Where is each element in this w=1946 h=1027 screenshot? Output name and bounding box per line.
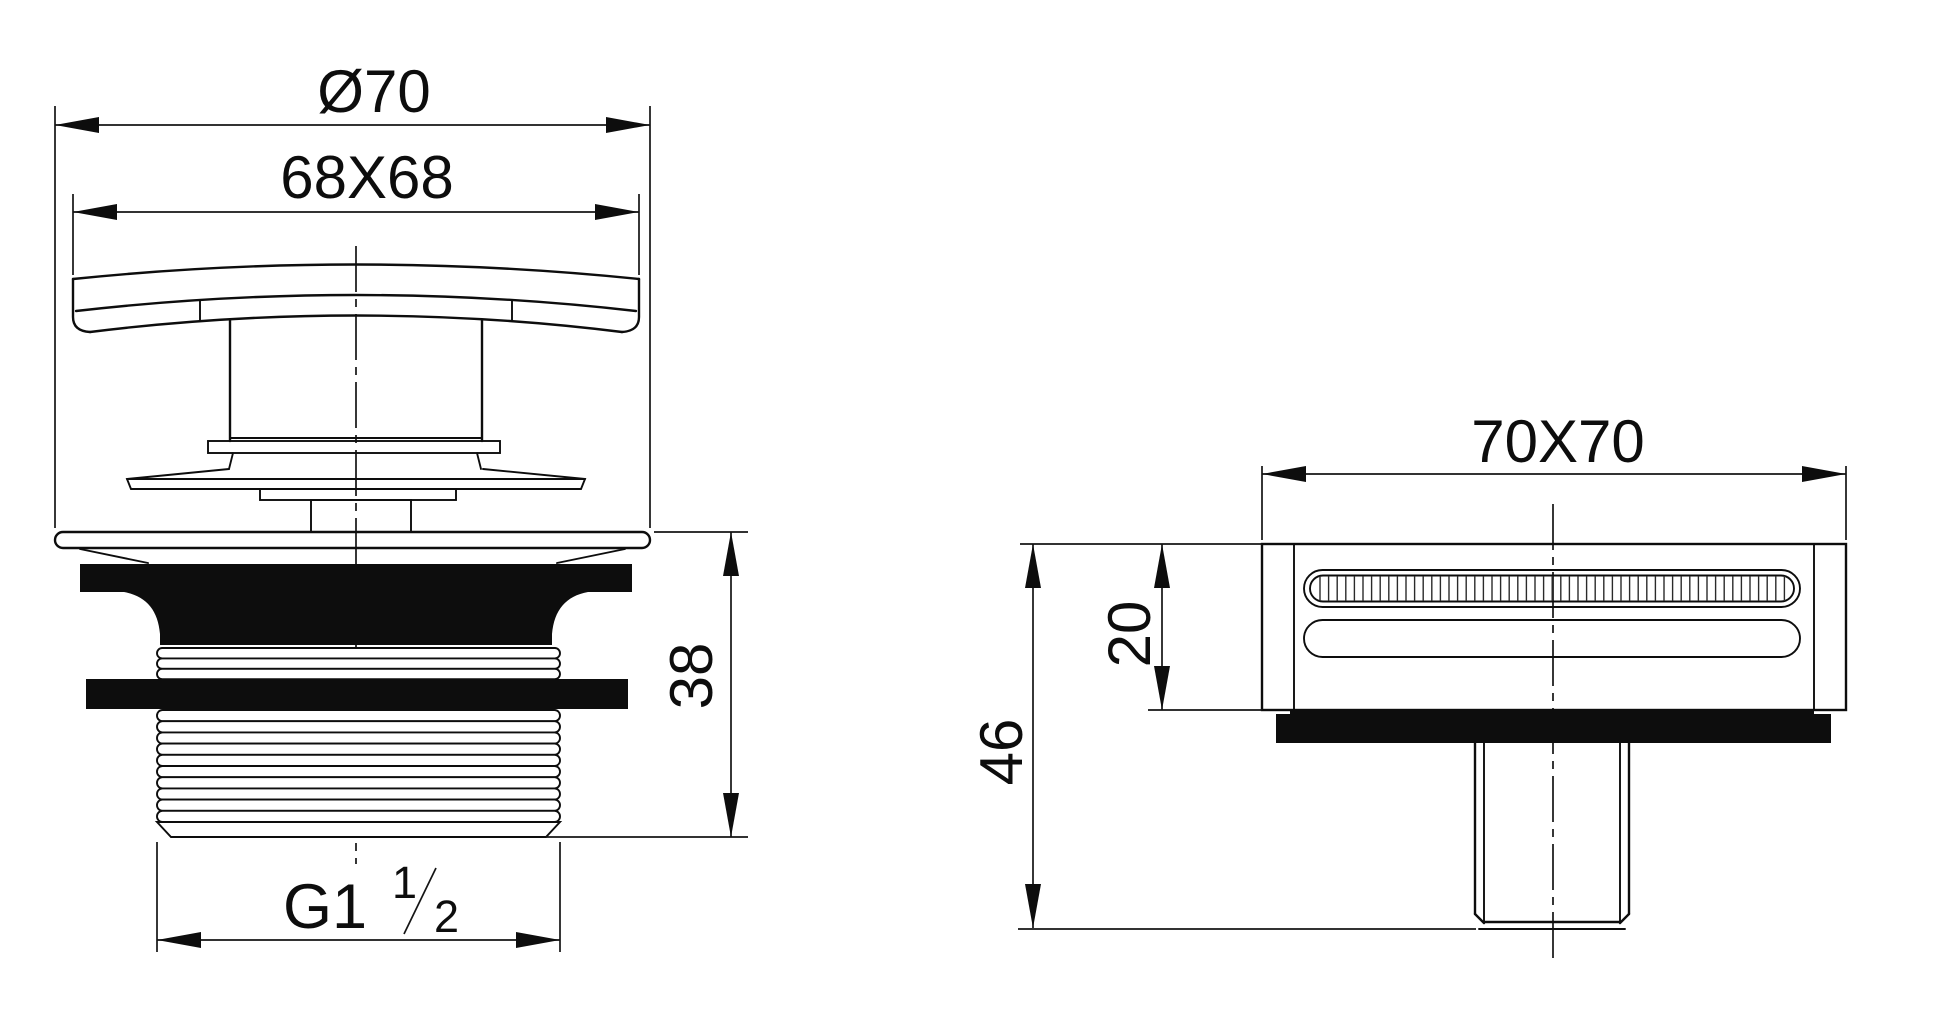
arrow-left-icon	[73, 204, 117, 220]
dim-thread-g1-2: G1 1 2	[157, 842, 560, 952]
arrow-up-icon	[1154, 544, 1170, 588]
arrow-right-icon	[516, 932, 560, 948]
drawing-sheet: Ø70 68X68	[0, 0, 1946, 1027]
seat-block	[260, 489, 456, 500]
side-gasket	[1276, 710, 1831, 743]
dim-label-thread-numerator: 1	[392, 857, 417, 908]
arrow-up-icon	[1025, 544, 1041, 588]
cap-right-end	[622, 279, 639, 332]
dim-label-height: 38	[658, 643, 725, 710]
arrow-down-icon	[1025, 884, 1041, 928]
thread-ring	[157, 744, 560, 755]
dim-diameter-70: Ø70	[55, 58, 650, 528]
body-plate	[55, 532, 650, 548]
thread-ring	[157, 648, 560, 658]
body-outline	[1262, 544, 1846, 710]
thread-ring	[157, 811, 560, 822]
thread-ring	[157, 766, 560, 777]
locknut-washer	[86, 679, 628, 709]
thread-rings-lower	[157, 710, 560, 822]
dim-label-thread-denominator: 2	[434, 891, 459, 942]
thread-ring	[157, 755, 560, 766]
drawing-canvas: Ø70 68X68	[0, 0, 1946, 1027]
cap-left-end	[73, 279, 90, 332]
plate-underside-right	[557, 549, 625, 563]
dim-label-body-height: 20	[1096, 601, 1163, 668]
grate-hatch-lines	[1320, 576, 1784, 601]
side-stem	[1475, 743, 1629, 929]
dim-label-width: 70X70	[1471, 408, 1645, 475]
thread-end-chamfer	[157, 822, 560, 837]
plate-underside-left	[80, 549, 148, 563]
thread-ring	[157, 721, 560, 732]
arrow-down-icon	[723, 793, 739, 837]
front-view: Ø70 68X68	[55, 58, 748, 952]
thread-ring	[157, 669, 560, 679]
thread-ring	[157, 777, 560, 788]
dim-label-diameter: Ø70	[317, 58, 430, 125]
guide-block	[311, 500, 411, 532]
thread-ring	[157, 710, 560, 721]
rubber-gasket	[80, 564, 632, 645]
thread-ring	[157, 658, 560, 668]
grate-slot-plain	[1304, 620, 1800, 657]
dim-label-cap: 68X68	[280, 144, 454, 211]
dim-width-70x70: 70X70	[1262, 408, 1846, 540]
dim-label-thread: G1	[283, 872, 367, 942]
dim-label-total-height: 46	[968, 719, 1035, 786]
thread-rings-upper	[157, 648, 560, 679]
flange-plate	[208, 441, 500, 453]
dim-body-20: 20	[1096, 544, 1262, 710]
side-view: 70X70	[968, 408, 1846, 958]
thread-ring	[157, 732, 560, 743]
arrow-right-icon	[595, 204, 639, 220]
thread-ring	[157, 788, 560, 799]
arrow-down-icon	[1154, 666, 1170, 710]
arrow-left-icon	[157, 932, 201, 948]
arrow-right-icon	[606, 117, 650, 133]
arrow-left-icon	[55, 117, 99, 133]
arrow-left-icon	[1262, 466, 1306, 482]
arrow-right-icon	[1802, 466, 1846, 482]
arrow-up-icon	[723, 532, 739, 576]
thread-ring	[157, 800, 560, 811]
side-body	[1262, 544, 1846, 710]
